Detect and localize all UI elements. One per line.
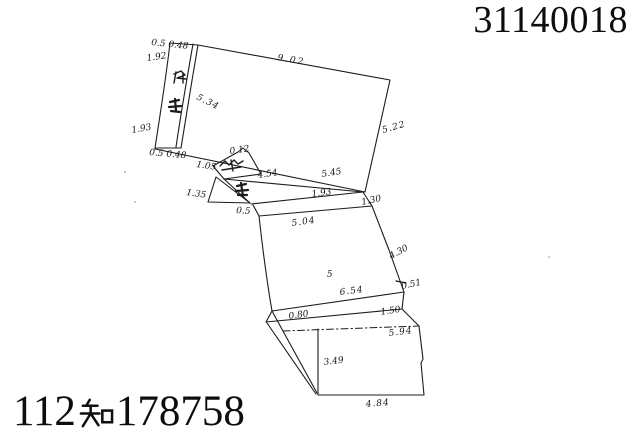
- speck-3: [548, 256, 550, 258]
- label-parcel5-right-upper: 4.30: [387, 243, 411, 262]
- kanji-zhi-glyph: [79, 395, 114, 432]
- wedge-bottom-line: [251, 192, 363, 204]
- label-parcel5-right-lower: 0.51: [401, 278, 423, 292]
- label-bottom-rect-bottom: 4.84: [364, 398, 390, 410]
- label-triangle-left: 1.35: [186, 188, 208, 201]
- parcel5-top-edge: [259, 206, 372, 216]
- handwritten-mark-3: [220, 160, 243, 171]
- reference-suffix: 178758: [116, 390, 245, 433]
- label-sliver-top-offsets: 0.5 0.48: [151, 38, 189, 52]
- speck-2: [134, 201, 136, 203]
- speck-1: [124, 171, 126, 173]
- label-connector: 1.30: [361, 194, 383, 208]
- label-small-quad-left: 1.05: [196, 160, 218, 173]
- parcel5-left-edge: [259, 216, 272, 311]
- handwritten-mark-4: [236, 183, 248, 196]
- label-sliver-left-lower: 1.93: [131, 123, 153, 136]
- label-band-right: 1.50: [380, 305, 402, 318]
- reference-number: 112 178758: [13, 390, 245, 433]
- band-right-connector: [402, 309, 419, 326]
- parcel-number: 5: [327, 270, 334, 280]
- label-bottom-right-seg: 5.45: [321, 167, 343, 180]
- cadastral-sketch: 0.5 0.48 1.92 5.34 1.93 0.5 0.48 9.02 5.…: [0, 0, 640, 441]
- label-parcel5-top: 5.04: [291, 216, 316, 229]
- sliver-inner-line-1: [176, 44, 193, 147]
- label-band-left: 0.80: [288, 309, 310, 322]
- reference-prefix: 112: [13, 390, 76, 433]
- label-notch: 0.12: [229, 144, 251, 157]
- label-bottom-left-seg: 4.54: [256, 168, 278, 181]
- label-sliver-bottom-offsets: 0.5 0.48: [149, 148, 187, 161]
- left-wedge-line-1: [272, 311, 317, 393]
- label-wedge-inner: 1.93: [311, 187, 333, 200]
- handwritten-mark-1: [174, 71, 186, 83]
- label-triangle-bottom: 0.5: [236, 206, 251, 217]
- strip-left-edge: [253, 205, 259, 216]
- handwritten-mark-2: [169, 99, 181, 112]
- label-sliver-inner-edge: 5.34: [195, 93, 221, 113]
- label-bottom-rect-top: 5.94: [388, 326, 413, 339]
- left-wedge-line-2: [267, 323, 316, 394]
- label-right-edge: 5.22: [381, 120, 407, 136]
- label-parcel5-bottom: 6.54: [339, 285, 364, 298]
- label-bottom-rect-inner: 3.49: [323, 356, 344, 368]
- scanned-survey-document: 31140018: [0, 0, 640, 441]
- label-sliver-left-upper: 1.92: [146, 51, 168, 64]
- label-top-edge: 9.02: [276, 53, 305, 68]
